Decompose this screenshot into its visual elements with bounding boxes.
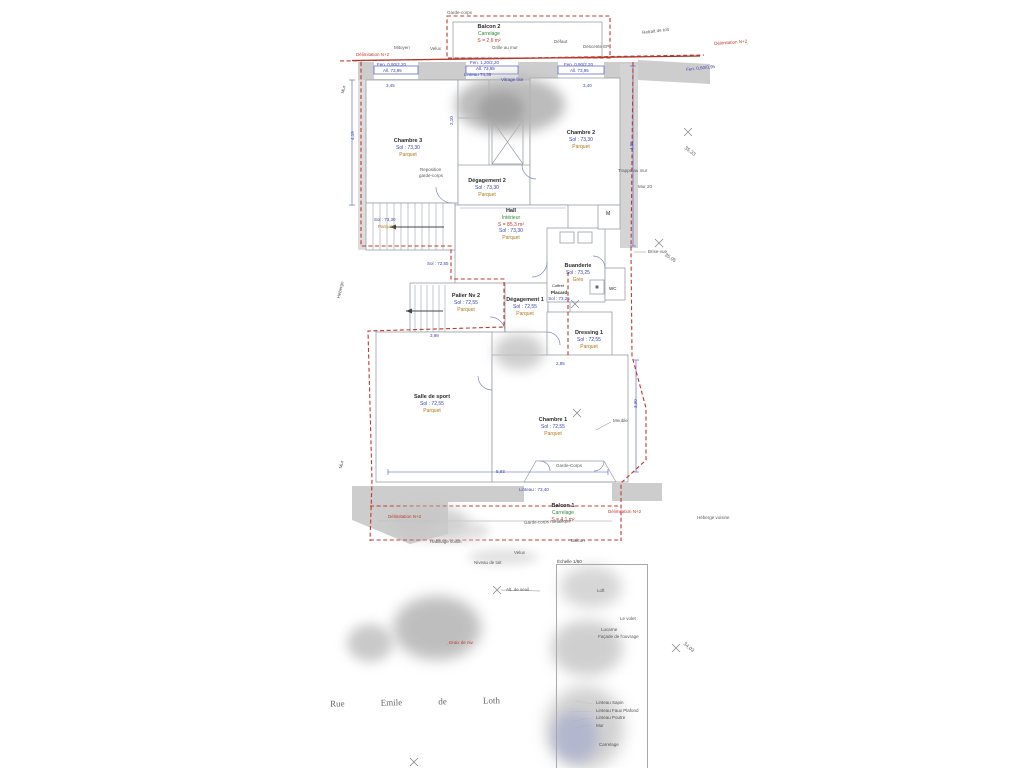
annotation-label: 3,90 xyxy=(634,399,639,408)
annotation-label: Descente EP xyxy=(583,45,609,50)
annotation-label: Linteau : 73,40 xyxy=(519,488,549,493)
annotation-label: Lucarne xyxy=(601,628,617,633)
room-name: Balcon 2 xyxy=(477,24,500,31)
annotation-label: Mur 20 xyxy=(638,185,652,190)
room-label-dressing: Dressing 1 Sol : 72,55 Parquet xyxy=(575,330,603,350)
room-label-degagement2: Dégagement 2 Sol : 73,30 Parquet xyxy=(468,178,506,198)
room-name: Placard xyxy=(548,290,570,296)
annotation-label: All. 73,95 xyxy=(383,69,402,74)
room-material: Carrelage xyxy=(477,31,500,38)
street-word: de xyxy=(438,696,447,706)
annotation-label: 2,10 xyxy=(450,116,455,125)
annotation-label: 5,93 xyxy=(496,470,505,475)
annotation-label: 3,98 xyxy=(430,334,439,339)
room-name: Hall xyxy=(498,208,524,215)
legend-item-list: Linteau SapinLinteau Faux PlafondLinteau… xyxy=(596,700,639,730)
street-word: Loth xyxy=(483,695,500,705)
room-level: Sol : 73,30 xyxy=(394,145,422,152)
blur-smudge xyxy=(347,624,393,662)
room-label-sport: Salle de sport Sol : 72,55 Parquet xyxy=(414,394,450,414)
room-name: Balcon 1 xyxy=(551,503,574,510)
annotation-label: Velux xyxy=(514,551,525,556)
room-label-balcon2: Balcon 2 Carrelage S = 2,6 m² xyxy=(477,24,500,44)
room-floor: Parquet xyxy=(575,344,603,351)
annotation-label: garde-corps xyxy=(419,174,443,179)
room-name: Dégagement 1 xyxy=(506,297,544,304)
room-name: Buanderie xyxy=(565,263,592,270)
legend-item: Linteau Sapin xyxy=(596,700,639,705)
street-word: Rue xyxy=(330,698,345,708)
room-material: Carrelage xyxy=(551,510,574,517)
annotation-label: All. 73,95 xyxy=(570,69,589,74)
annotation-label: 3,45 xyxy=(386,84,395,89)
room-material: Intérieur xyxy=(498,215,524,222)
room-floor: Parquet xyxy=(394,152,422,159)
annotation-label: Croix de niv. xyxy=(449,641,474,646)
room-label-hall: Hall Intérieur S = 85,3 m² Sol : 73,30 P… xyxy=(498,208,524,241)
annotation-label: Délimitation N+2 xyxy=(608,510,641,515)
street-word: Emile xyxy=(381,697,403,707)
annotation-label: Vitrage fixe xyxy=(501,78,523,83)
annotation-label: WC xyxy=(609,287,617,292)
annotation-label: Sol : 73,30 xyxy=(374,218,396,223)
annotation-label: Linteau 74,35 xyxy=(464,73,491,78)
room-label-degagement1: Dégagement 1 Sol : 72,55 Parquet xyxy=(506,297,544,317)
room-level: Sol : 72,55 xyxy=(452,300,480,307)
room-floor: Parquet xyxy=(567,144,595,151)
annotation-label: M xyxy=(606,212,610,218)
room-label-placard: Placard Sol : 73,25 xyxy=(548,290,570,302)
room-label-palier: Palier Nv 2 Sol : 72,55 Parquet xyxy=(452,293,480,313)
blur-smudge xyxy=(393,596,481,660)
annotation-label: Trappe au mur xyxy=(618,169,647,174)
annotation-label: Meuble xyxy=(613,419,628,424)
room-surface: S = 2,6 m² xyxy=(477,38,500,45)
room-name: Chambre 3 xyxy=(394,138,422,145)
annotation-label: Balcon xyxy=(571,539,585,544)
room-floor: Parquet xyxy=(506,311,544,318)
room-floor: Parquet xyxy=(539,431,567,438)
annotation-label: Garde-Corps xyxy=(556,464,582,469)
room-name: Chambre 1 xyxy=(539,417,567,424)
annotation-label: Mitoyen xyxy=(394,46,410,51)
annotation-label: Délimitation N+2 xyxy=(388,515,421,520)
room-label-chambre2: Chambre 2 Sol : 73,30 Parquet xyxy=(567,130,595,150)
annotation-label: 2,85 xyxy=(556,362,565,367)
annotation-label: Défaut xyxy=(554,40,567,45)
room-floor: Parquet xyxy=(414,408,450,415)
legend-box xyxy=(556,564,648,768)
legend-item: Linteau Faux Plafond xyxy=(596,708,639,713)
room-name: Palier Nv 2 xyxy=(452,293,480,300)
annotation-label: Parquet xyxy=(378,225,394,230)
annotation-label: Héberge voisine xyxy=(697,516,730,521)
annotation-label: Loft xyxy=(597,589,605,594)
room-name: Dressing 1 xyxy=(575,330,603,337)
room-label-buanderie: Buanderie Sol : 73,25 Grès xyxy=(565,263,592,283)
annotation-label: 3,40 xyxy=(583,84,592,89)
annotation-label: Alt. de seuil xyxy=(506,588,529,593)
annotation-label: Garde-corps xyxy=(447,11,472,16)
annotation-label: Velux xyxy=(430,47,441,52)
annotation-label: Grille au mur xyxy=(492,46,518,51)
annotation-label: Façade de l'ouvrage xyxy=(598,635,639,640)
annotation-label: Délimitation N+2 xyxy=(356,53,389,58)
room-level: Sol : 73,25 xyxy=(565,270,592,277)
room-floor: Parquet xyxy=(498,235,524,242)
room-name: Salle de sport xyxy=(414,394,450,401)
room-level: Sol : 72,55 xyxy=(575,337,603,344)
room-floor: Grès xyxy=(565,277,592,284)
legend-item: Linteau Poutre xyxy=(596,715,639,720)
room-label-chambre3: Chambre 3 Sol : 73,30 Parquet xyxy=(394,138,422,158)
room-level: Sol : 72,55 xyxy=(539,424,567,431)
room-level: Sol : 73,25 xyxy=(548,296,570,302)
room-name: Chambre 2 xyxy=(567,130,595,137)
floorplan-page: Balcon 2 Carrelage S = 2,6 m² Chambre 3 … xyxy=(0,0,1024,768)
room-level: Sol : 73,30 xyxy=(498,228,524,235)
legend-footer: Carrelage xyxy=(599,742,619,747)
blur-smudge xyxy=(478,92,524,126)
room-floor: Parquet xyxy=(452,307,480,314)
legend-item: Mur xyxy=(596,723,639,728)
annotation-label: 4,19 xyxy=(351,131,356,140)
blur-smudge xyxy=(494,334,544,370)
annotation-label: 4,05 xyxy=(630,141,635,150)
annotation-label: Le volet xyxy=(620,617,636,622)
room-label-chambre1: Chambre 1 Sol : 72,55 Parquet xyxy=(539,417,567,437)
annotation-label: Habillage voisin xyxy=(430,540,462,545)
annotation-label: Coffret xyxy=(552,284,564,288)
annotation-label: Niveau de toit xyxy=(474,561,502,566)
room-level: Sol : 73,30 xyxy=(567,137,595,144)
annotation-label: Sol : 72,55 xyxy=(427,262,449,267)
room-name: Dégagement 2 xyxy=(468,178,506,185)
room-floor: Parquet xyxy=(468,192,506,199)
